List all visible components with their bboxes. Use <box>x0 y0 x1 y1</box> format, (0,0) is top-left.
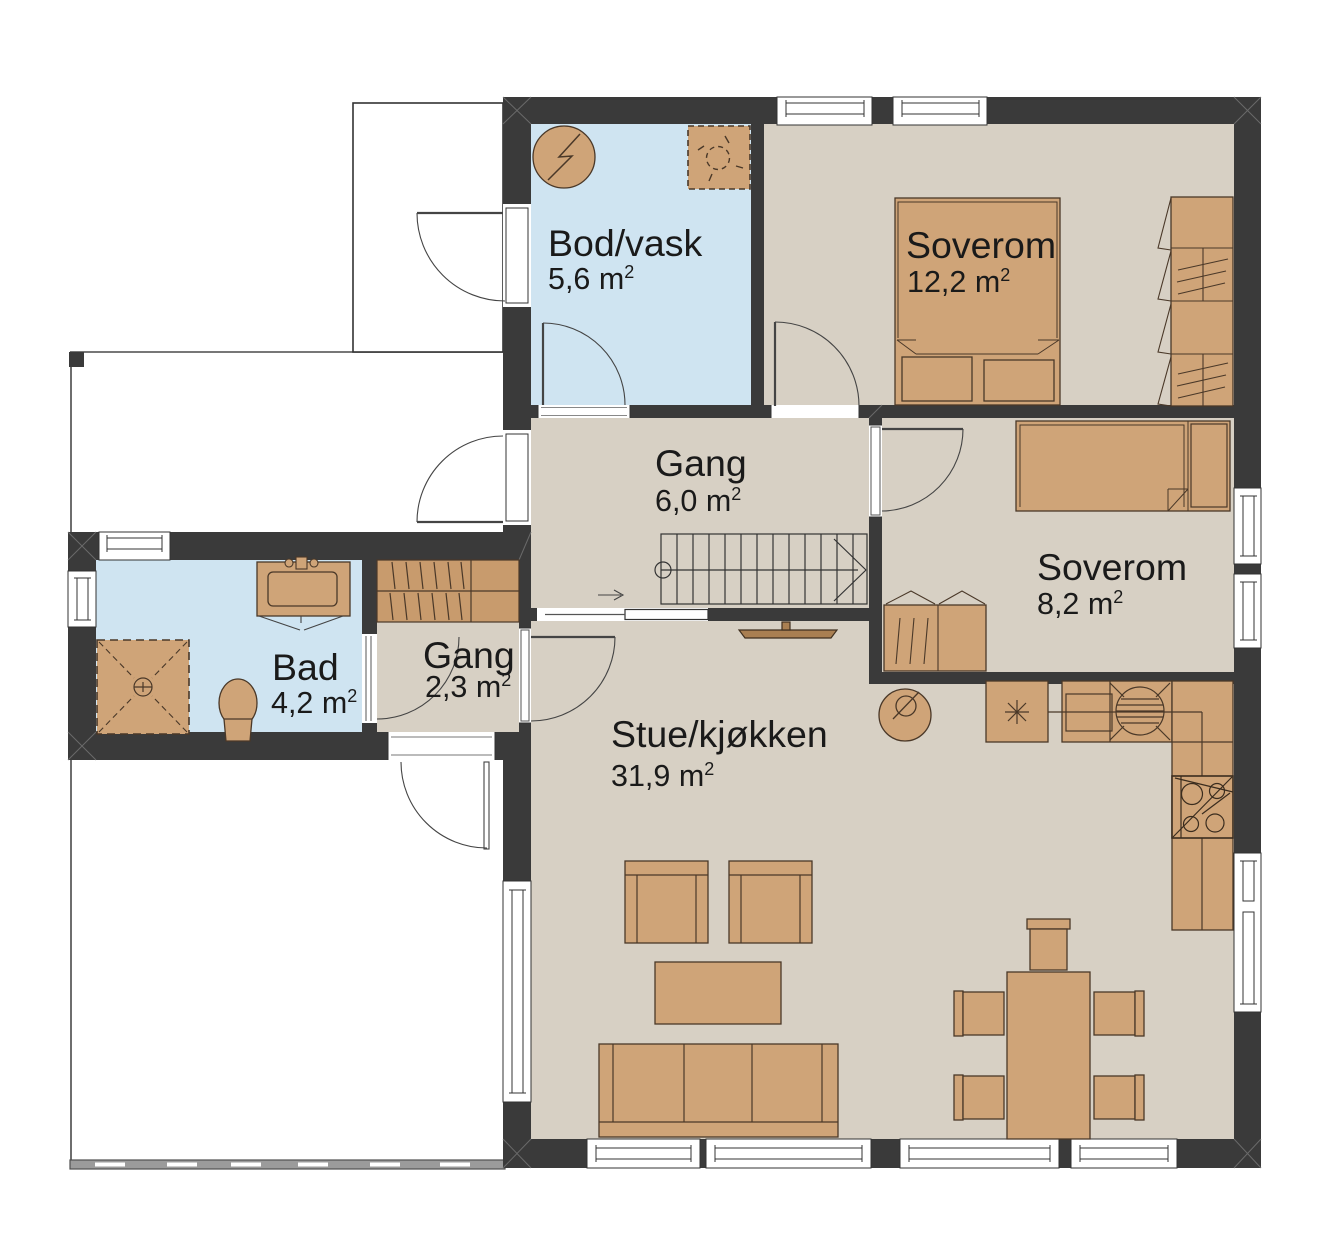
svg-text:31,9 m2: 31,9 m2 <box>611 759 714 793</box>
svg-text:4,2 m2: 4,2 m2 <box>271 686 357 720</box>
svg-text:6,0 m2: 6,0 m2 <box>655 484 741 518</box>
svg-text:12,2 m2: 12,2 m2 <box>907 265 1010 299</box>
svg-text:Bod/vask: Bod/vask <box>548 222 702 264</box>
svg-text:Soverom: Soverom <box>1037 546 1187 588</box>
svg-text:Gang: Gang <box>655 442 747 484</box>
svg-text:Stue/kjøkken: Stue/kjøkken <box>611 713 828 755</box>
svg-text:Bad: Bad <box>272 646 339 688</box>
svg-text:5,6 m2: 5,6 m2 <box>548 262 634 296</box>
svg-text:8,2 m2: 8,2 m2 <box>1037 587 1123 621</box>
svg-text:2,3 m2: 2,3 m2 <box>425 670 511 704</box>
svg-text:Soverom: Soverom <box>906 224 1056 266</box>
